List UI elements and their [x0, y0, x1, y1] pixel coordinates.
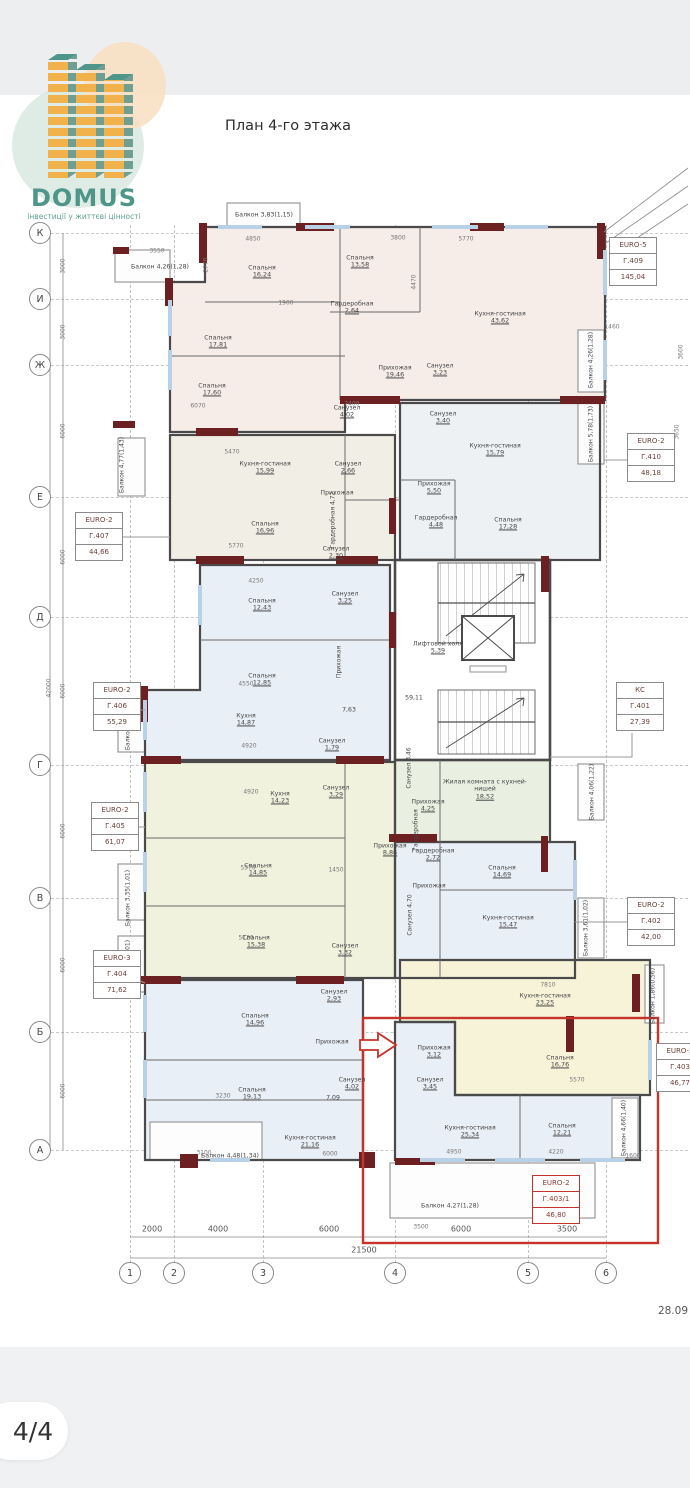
logo-towers-graphic — [34, 40, 144, 190]
footer-bar — [0, 1347, 690, 1488]
floorplan-area: КИЖЕДГВБА1234563000300060006000600060006… — [0, 0, 690, 1500]
entrance-arrow — [360, 1033, 396, 1057]
floorplan-drawing — [0, 0, 690, 1500]
pagination-badge: 4/4 — [0, 1402, 68, 1460]
logo-wordmark: DOMUS — [24, 184, 144, 212]
apartment-fills — [145, 227, 650, 1160]
logo-tagline: інвестиції у життєві цінності — [0, 212, 168, 221]
domus-logo: DOMUS інвестиції у життєві цінності — [0, 18, 230, 218]
plan-date: 28.09 — [658, 1305, 688, 1317]
screenshot-page: КИЖЕДГВБА1234563000300060006000600060006… — [0, 0, 690, 1500]
